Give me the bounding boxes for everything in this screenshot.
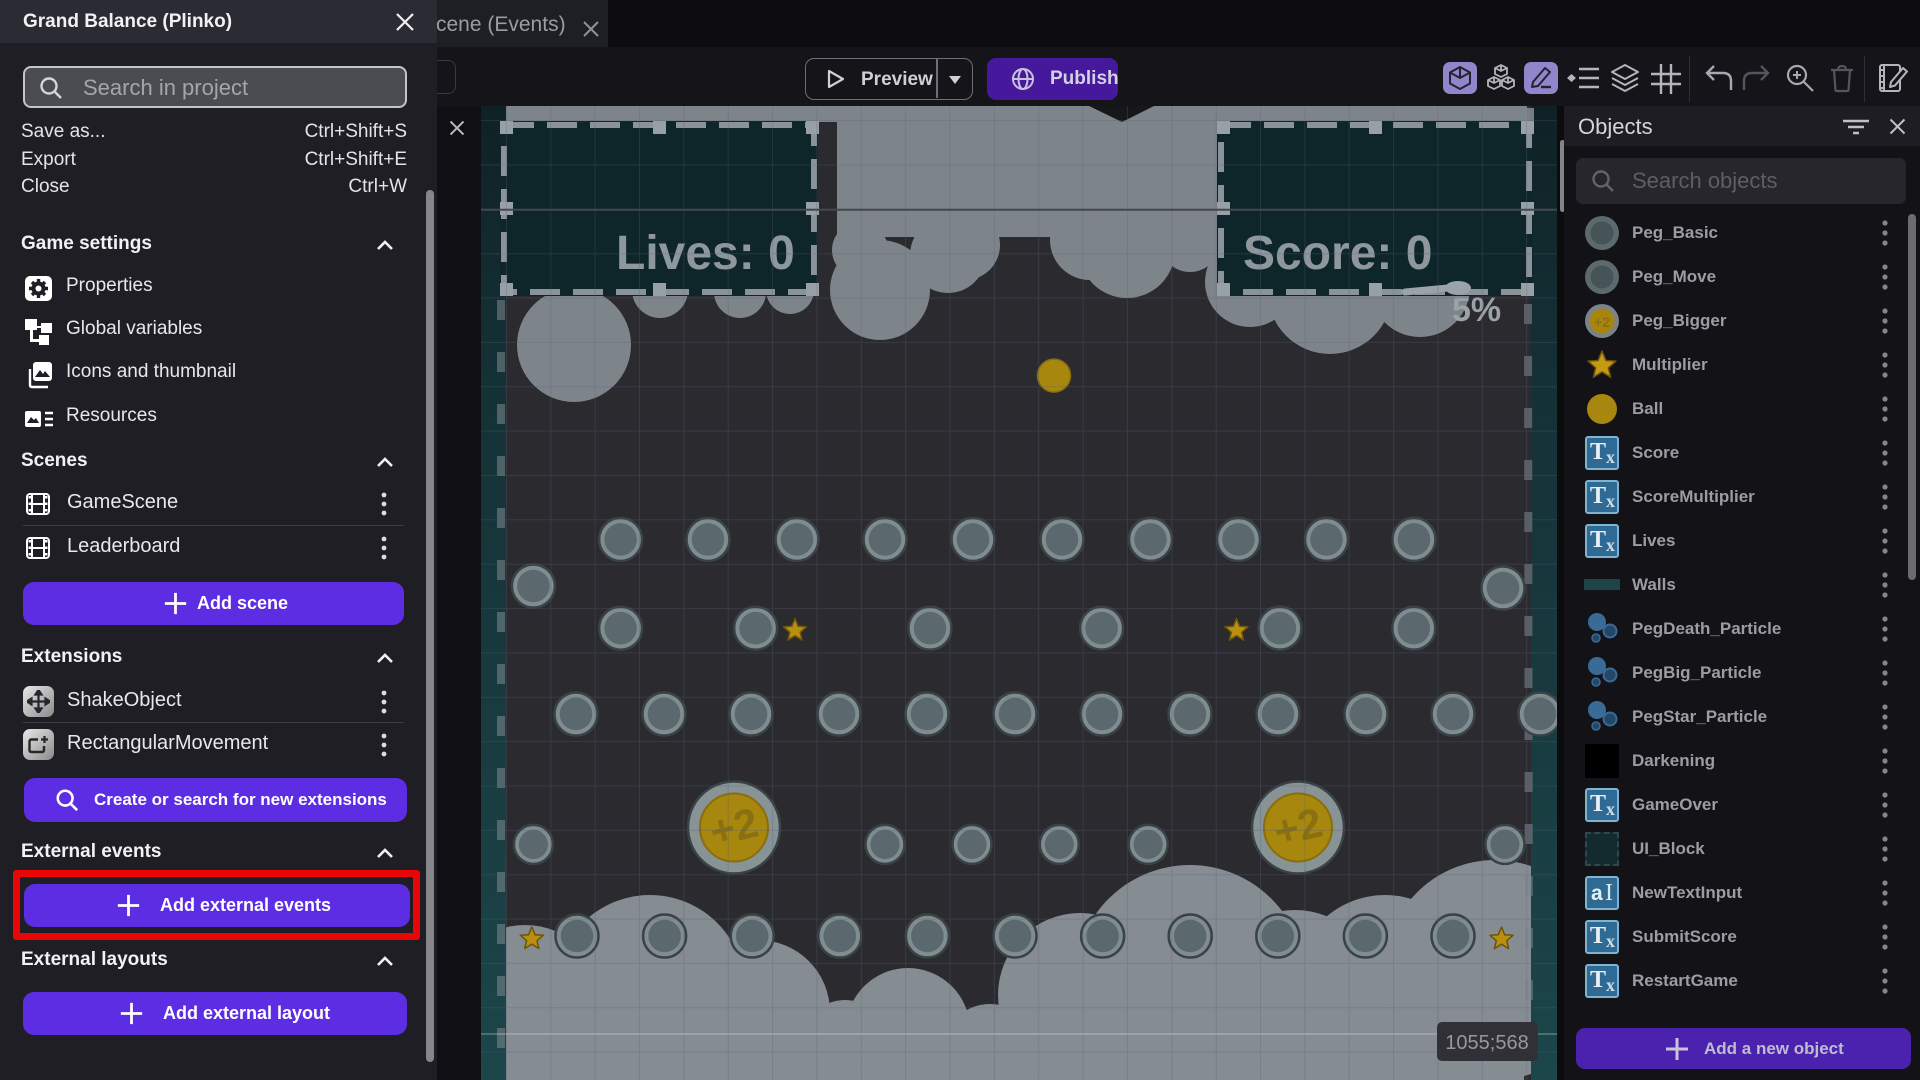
svg-text:1055;568: 1055;568 <box>1445 1032 1528 1054</box>
svg-text:+2: +2 <box>1594 314 1610 330</box>
svg-text:5%: 5% <box>1452 291 1501 329</box>
